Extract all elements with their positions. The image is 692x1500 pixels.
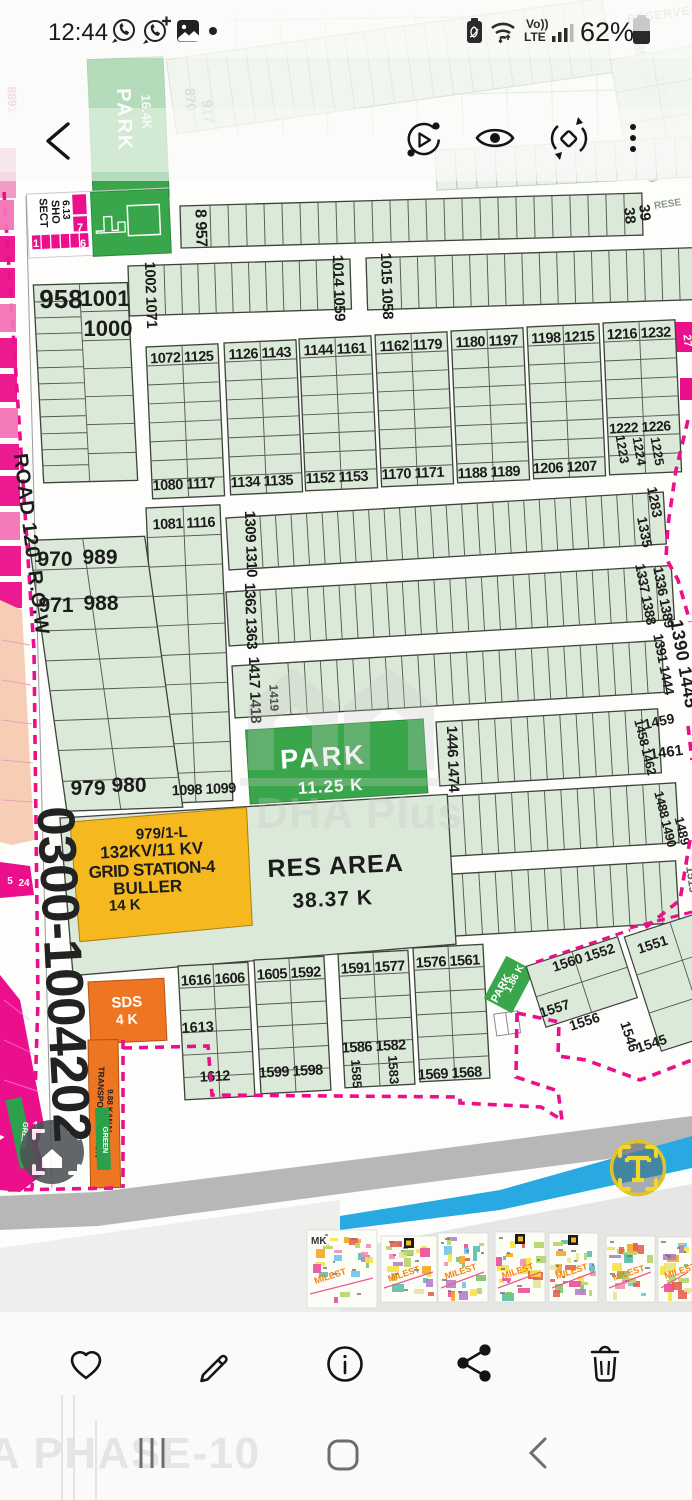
- svg-text:62%: 62%: [580, 17, 634, 47]
- svg-text:7: 7: [77, 222, 83, 234]
- svg-text:1198 1215: 1198 1215: [531, 329, 595, 348]
- svg-text:LTE: LTE: [524, 30, 546, 44]
- svg-text:1081 1116: 1081 1116: [152, 515, 216, 534]
- svg-text:1134 1135: 1134 1135: [230, 473, 294, 492]
- svg-text:27: 27: [680, 334, 692, 347]
- svg-text:4 K: 4 K: [115, 1010, 138, 1027]
- svg-text:1309 1310: 1309 1310: [241, 510, 260, 577]
- svg-text:Vo)): Vo)): [526, 17, 548, 31]
- svg-text:SECT: SECT: [36, 198, 49, 228]
- svg-text:1613: 1613: [181, 1019, 214, 1037]
- svg-text:1152 1153: 1152 1153: [305, 469, 369, 488]
- svg-text:1014 1059: 1014 1059: [329, 254, 348, 321]
- svg-text:1080 1117: 1080 1117: [152, 476, 216, 495]
- svg-text:1585: 1585: [348, 1059, 365, 1089]
- svg-text:SDS: SDS: [111, 993, 143, 1011]
- svg-text:979: 979: [70, 777, 105, 800]
- svg-text:6.13: 6.13: [60, 200, 72, 220]
- svg-text:988: 988: [83, 592, 118, 615]
- svg-text:24: 24: [18, 878, 30, 889]
- svg-text:5: 5: [7, 876, 13, 887]
- svg-text:1162 1179: 1162 1179: [379, 337, 443, 356]
- svg-text:1446 1474: 1446 1474: [443, 725, 462, 793]
- svg-text:989: 989: [82, 546, 117, 569]
- svg-text:14 K: 14 K: [109, 896, 142, 915]
- svg-text:1144 1161: 1144 1161: [303, 341, 367, 360]
- svg-text:1002 1071: 1002 1071: [141, 261, 160, 328]
- svg-text:MK: MK: [311, 1236, 327, 1247]
- svg-text:1001: 1001: [81, 286, 130, 311]
- svg-text:1206 1207: 1206 1207: [532, 459, 597, 478]
- svg-text:1569 1568: 1569 1568: [417, 1064, 482, 1083]
- svg-text:1616 1606: 1616 1606: [180, 970, 245, 989]
- svg-text:1362 1363: 1362 1363: [241, 582, 260, 649]
- svg-text:1216 1232: 1216 1232: [606, 325, 671, 344]
- svg-text:980: 980: [111, 774, 146, 797]
- svg-text:1583: 1583: [385, 1055, 402, 1085]
- svg-text:39: 39: [635, 204, 653, 222]
- svg-text:1612: 1612: [199, 1068, 230, 1086]
- svg-text:SHO: SHO: [49, 200, 62, 225]
- svg-text:1605 1592: 1605 1592: [256, 964, 321, 983]
- svg-text:1170 1171: 1170 1171: [381, 465, 445, 484]
- svg-text:1000: 1000: [84, 316, 133, 341]
- svg-text:BULLER: BULLER: [113, 876, 183, 898]
- svg-text:1015 1058: 1015 1058: [377, 252, 396, 319]
- svg-text:1072 1125: 1072 1125: [150, 349, 214, 368]
- svg-text:1: 1: [33, 238, 39, 250]
- svg-text:1599 1598: 1599 1598: [258, 1062, 323, 1081]
- svg-text:1222 1226: 1222 1226: [609, 417, 672, 436]
- svg-text:1576 1561: 1576 1561: [415, 952, 480, 971]
- svg-text:958: 958: [39, 284, 82, 314]
- svg-text:38.37 K: 38.37 K: [292, 886, 374, 913]
- svg-text:1126 1143: 1126 1143: [228, 345, 292, 364]
- svg-text:A PHASE-10: A PHASE-10: [0, 1429, 261, 1478]
- svg-text:DHA Plus: DHA Plus: [256, 789, 463, 838]
- svg-text:6: 6: [80, 238, 86, 250]
- svg-text:1591 1577: 1591 1577: [340, 958, 405, 977]
- svg-text:1586 1582: 1586 1582: [341, 1037, 406, 1056]
- svg-text:12:44: 12:44: [48, 19, 108, 46]
- svg-text:1098 1099: 1098 1099: [171, 781, 236, 800]
- svg-text:1188 1189: 1188 1189: [457, 464, 521, 483]
- svg-text:1180 1197: 1180 1197: [455, 333, 519, 352]
- svg-text:8 957: 8 957: [191, 209, 209, 248]
